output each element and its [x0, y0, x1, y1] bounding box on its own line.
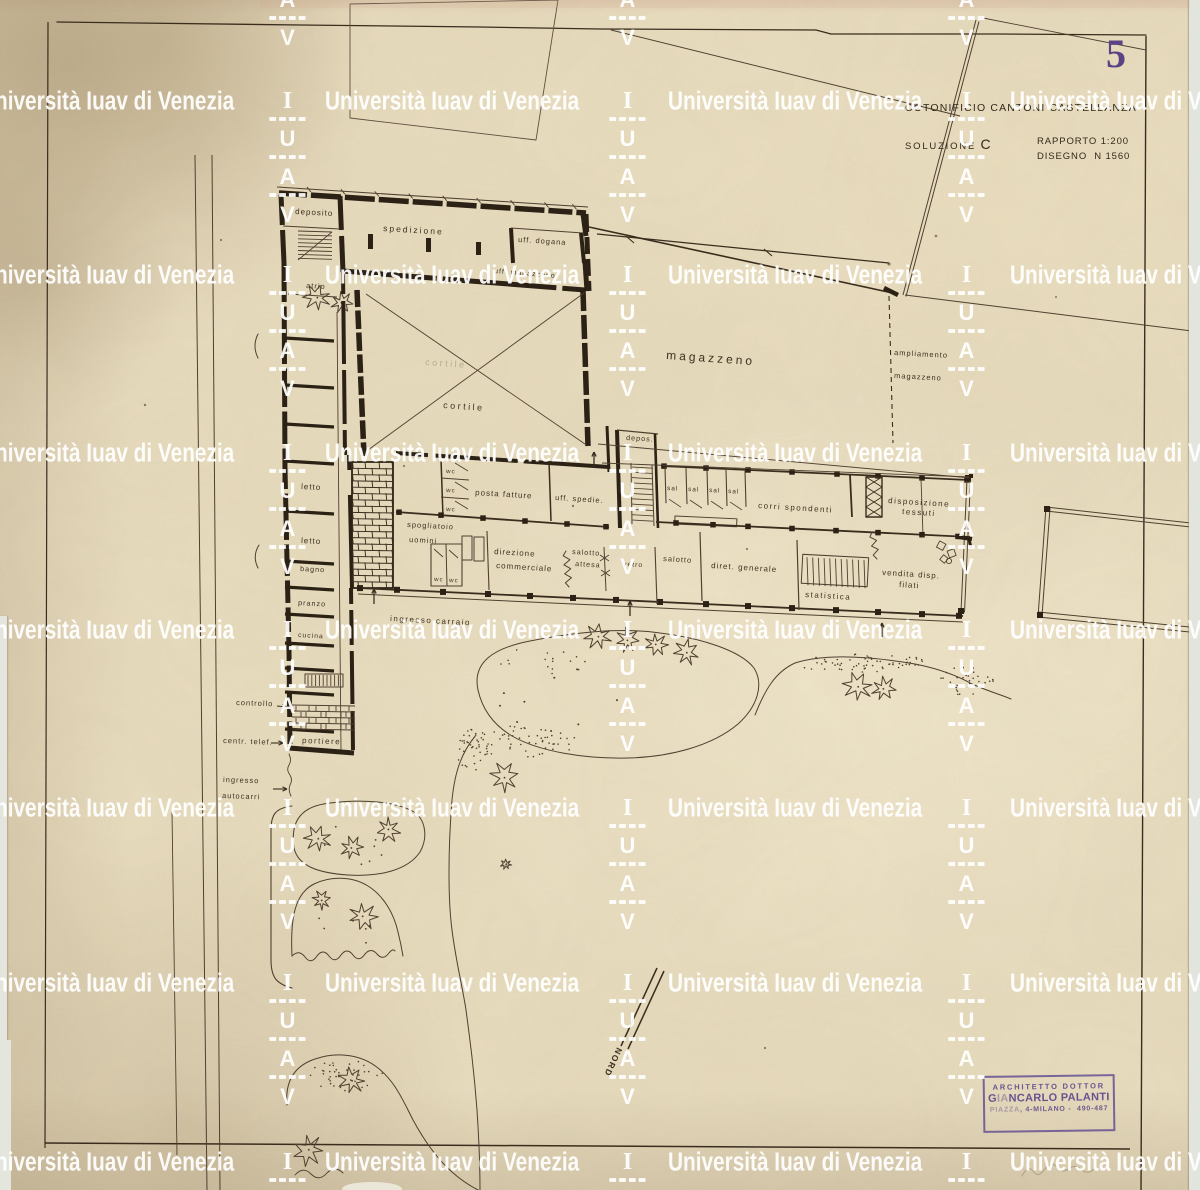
svg-text:I: I	[623, 970, 632, 996]
svg-text:U: U	[959, 300, 975, 325]
svg-text:Università Iuav di Venezia: Università Iuav di Venezia	[325, 1147, 580, 1176]
svg-text:V: V	[280, 731, 295, 756]
svg-text:Università Iuav di Venezia: Università Iuav di Venezia	[1010, 260, 1200, 289]
svg-text:A: A	[959, 516, 975, 541]
svg-text:A: A	[959, 1046, 975, 1071]
svg-text:U: U	[620, 126, 636, 151]
svg-text:U: U	[620, 478, 636, 503]
svg-text:Università Iuav di Venezia: Università Iuav di Venezia	[325, 260, 580, 289]
svg-text:Università Iuav di Venezia: Università Iuav di Venezia	[668, 438, 923, 467]
svg-text:Università Iuav di Venezia: Università Iuav di Venezia	[668, 1147, 923, 1176]
svg-text:A: A	[280, 164, 296, 189]
svg-text:V: V	[959, 731, 974, 756]
svg-text:Università Iuav di Venezia: Università Iuav di Venezia	[668, 968, 923, 997]
svg-text:Università Iuav di Venezia: Università Iuav di Venezia	[668, 260, 923, 289]
svg-text:I: I	[283, 795, 292, 821]
svg-text:Università Iuav di Venezia: Università Iuav di Venezia	[0, 86, 235, 115]
svg-text:A: A	[959, 0, 975, 12]
svg-text:A: A	[959, 871, 975, 896]
svg-text:Università Iuav di Venezia: Università Iuav di Venezia	[0, 438, 235, 467]
svg-text:Università Iuav di Venezia: Università Iuav di Venezia	[325, 615, 580, 644]
svg-text:V: V	[959, 554, 974, 579]
svg-text:I: I	[962, 262, 971, 288]
svg-text:A: A	[620, 1046, 636, 1071]
svg-text:Università Iuav di Venezia: Università Iuav di Venezia	[0, 1147, 235, 1176]
svg-text:V: V	[280, 909, 295, 934]
svg-text:Università Iuav di Venezia: Università Iuav di Venezia	[668, 86, 923, 115]
svg-text:V: V	[280, 376, 295, 401]
svg-text:A: A	[959, 693, 975, 718]
svg-text:A: A	[959, 338, 975, 363]
svg-text:U: U	[959, 126, 975, 151]
svg-text:V: V	[620, 909, 635, 934]
svg-text:I: I	[283, 970, 292, 996]
svg-text:V: V	[620, 376, 635, 401]
svg-text:A: A	[620, 516, 636, 541]
svg-text:U: U	[959, 1008, 975, 1033]
svg-text:U: U	[280, 833, 296, 858]
svg-text:I: I	[283, 617, 292, 643]
svg-text:V: V	[959, 202, 974, 227]
svg-text:Università Iuav di Venezia: Università Iuav di Venezia	[0, 968, 235, 997]
svg-text:I: I	[623, 88, 632, 114]
svg-text:A: A	[620, 338, 636, 363]
svg-text:I: I	[283, 88, 292, 114]
svg-text:A: A	[280, 0, 296, 12]
svg-text:Università Iuav di Venezia: Università Iuav di Venezia	[1010, 1147, 1200, 1176]
svg-text:V: V	[620, 1084, 635, 1109]
svg-text:A: A	[280, 693, 296, 718]
svg-text:Università Iuav di Venezia: Università Iuav di Venezia	[1010, 968, 1200, 997]
svg-text:Università Iuav di Venezia: Università Iuav di Venezia	[0, 615, 235, 644]
svg-text:A: A	[280, 516, 296, 541]
svg-text:Università Iuav di Venezia: Università Iuav di Venezia	[668, 793, 923, 822]
svg-text:U: U	[620, 833, 636, 858]
svg-text:V: V	[620, 554, 635, 579]
svg-text:V: V	[959, 25, 974, 50]
svg-text:V: V	[280, 202, 295, 227]
svg-text:U: U	[280, 1008, 296, 1033]
svg-text:I: I	[283, 262, 292, 288]
svg-text:I: I	[962, 970, 971, 996]
svg-text:V: V	[959, 1084, 974, 1109]
svg-text:I: I	[623, 1149, 632, 1175]
svg-text:Università Iuav di Venezia: Università Iuav di Venezia	[325, 438, 580, 467]
svg-text:V: V	[280, 554, 295, 579]
svg-text:Università Iuav di Venezia: Università Iuav di Venezia	[325, 86, 580, 115]
svg-text:U: U	[280, 126, 296, 151]
svg-text:I: I	[962, 1149, 971, 1175]
svg-text:I: I	[623, 795, 632, 821]
svg-text:Università Iuav di Venezia: Università Iuav di Venezia	[0, 260, 235, 289]
svg-text:Università Iuav di Venezia: Università Iuav di Venezia	[1010, 438, 1200, 467]
svg-text:U: U	[280, 655, 296, 680]
svg-text:Università Iuav di Venezia: Università Iuav di Venezia	[1010, 615, 1200, 644]
svg-text:I: I	[962, 795, 971, 821]
svg-text:V: V	[959, 909, 974, 934]
svg-text:I: I	[623, 440, 632, 466]
svg-text:I: I	[283, 1149, 292, 1175]
svg-text:V: V	[280, 1084, 295, 1109]
svg-text:V: V	[620, 202, 635, 227]
svg-text:U: U	[620, 655, 636, 680]
svg-text:I: I	[962, 88, 971, 114]
svg-text:A: A	[280, 1046, 296, 1071]
svg-text:V: V	[620, 731, 635, 756]
svg-text:U: U	[280, 300, 296, 325]
svg-text:A: A	[959, 164, 975, 189]
svg-text:V: V	[280, 25, 295, 50]
svg-text:Università Iuav di Venezia: Università Iuav di Venezia	[1010, 793, 1200, 822]
svg-text:Università Iuav di Venezia: Università Iuav di Venezia	[0, 793, 235, 822]
svg-text:A: A	[280, 871, 296, 896]
svg-text:U: U	[280, 478, 296, 503]
svg-text:Università Iuav di Venezia: Università Iuav di Venezia	[325, 793, 580, 822]
svg-text:I: I	[283, 440, 292, 466]
svg-text:U: U	[620, 300, 636, 325]
svg-text:A: A	[620, 871, 636, 896]
svg-text:U: U	[959, 478, 975, 503]
svg-text:Università Iuav di Venezia: Università Iuav di Venezia	[325, 968, 580, 997]
svg-text:I: I	[962, 440, 971, 466]
svg-text:A: A	[620, 0, 636, 12]
svg-text:I: I	[623, 617, 632, 643]
svg-text:V: V	[620, 25, 635, 50]
svg-text:U: U	[959, 655, 975, 680]
svg-text:Università Iuav di Venezia: Università Iuav di Venezia	[1010, 86, 1200, 115]
svg-text:Università Iuav di Venezia: Università Iuav di Venezia	[668, 615, 923, 644]
svg-text:A: A	[620, 164, 636, 189]
svg-text:A: A	[280, 338, 296, 363]
svg-text:I: I	[623, 262, 632, 288]
svg-text:U: U	[959, 833, 975, 858]
svg-text:U: U	[620, 1008, 636, 1033]
svg-text:I: I	[962, 617, 971, 643]
svg-text:V: V	[959, 376, 974, 401]
svg-text:A: A	[620, 693, 636, 718]
